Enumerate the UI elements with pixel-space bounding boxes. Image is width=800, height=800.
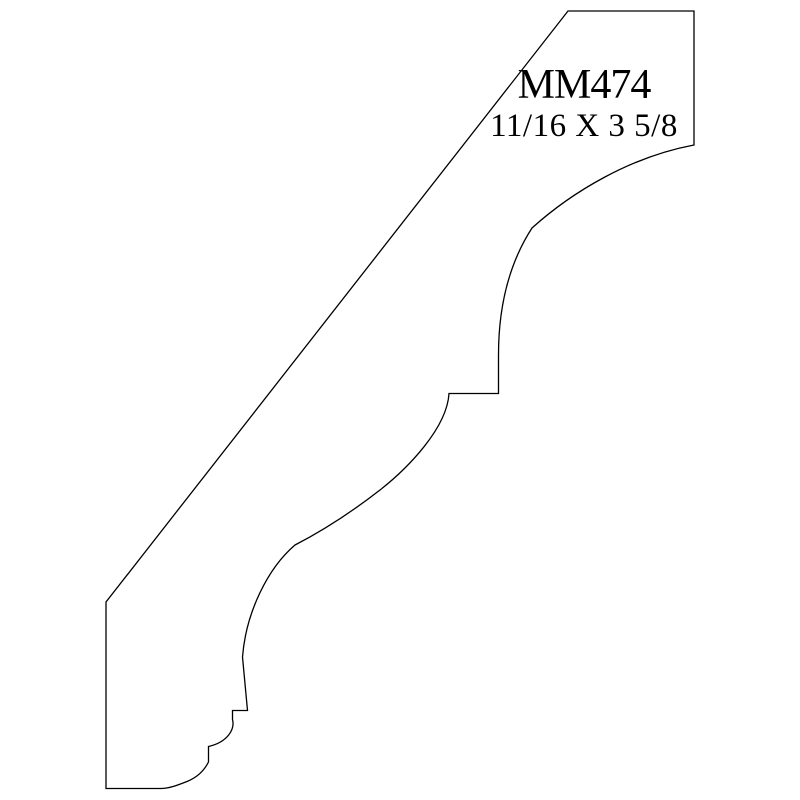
profile-dimensions-label: 11/16 X 3 5/8: [450, 108, 718, 144]
drawing-labels: MM474 11/16 X 3 5/8: [450, 62, 718, 144]
profile-code-label: MM474: [450, 62, 718, 108]
molding-profile-drawing: MM474 11/16 X 3 5/8: [0, 0, 800, 800]
